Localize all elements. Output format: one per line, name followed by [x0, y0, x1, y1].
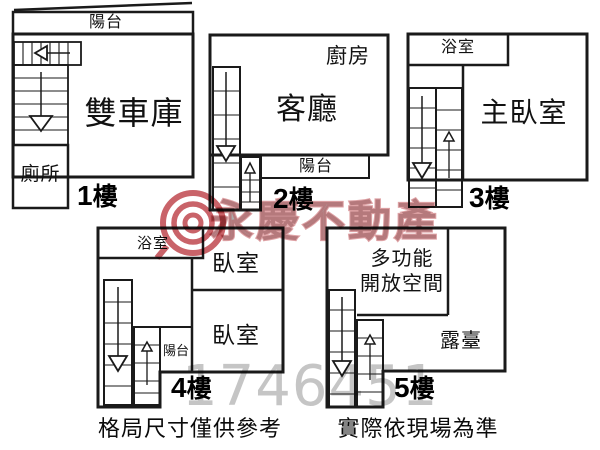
f1-stairs-vertical — [14, 65, 68, 145]
room-label-multifunction-line2: 開放空間 — [350, 272, 454, 295]
stairs-up-arrow-icon — [142, 342, 152, 351]
room-label-balcony-f2: 陽台 — [285, 156, 347, 178]
listing-number-watermark: 1746451 — [182, 356, 412, 418]
floor-3-label: 3樓 — [469, 184, 510, 212]
room-label-toilet: 廁所 — [13, 161, 68, 187]
f4-stairs-up — [134, 327, 160, 405]
f1-stairs-horizontal — [14, 42, 81, 65]
room-label-terrace: 露臺 — [419, 329, 503, 352]
room-label-bath-f3: 浴室 — [430, 37, 486, 59]
floorplan-image: 陽台 雙車庫 廁所 1樓 廚房 客廳 — [0, 0, 600, 450]
room-label-bedroom-bottom: 臥室 — [198, 322, 274, 349]
room-label-balcony-f1: 陽台 — [58, 12, 154, 34]
floor-3-suffix: 樓 — [485, 187, 510, 212]
disclaimer-left: 格局尺寸僅供參考 — [98, 412, 282, 442]
room-label-living: 客廳 — [268, 92, 346, 128]
stairs-up-arrow-icon — [365, 335, 375, 344]
stairs-down-arrow-icon — [413, 163, 431, 178]
f3-stairs — [409, 88, 462, 207]
floor-1-digit: 1 — [77, 182, 93, 210]
room-label-garage: 雙車庫 — [80, 93, 188, 133]
f4-stairs-down — [104, 280, 132, 405]
floor-1-suffix: 樓 — [93, 185, 118, 210]
f1-outer-slant-wall — [14, 3, 192, 10]
room-label-master-bedroom: 主臥室 — [476, 96, 572, 130]
disclaimer-right: 實際依現場為準 — [340, 412, 496, 442]
room-label-kitchen: 廚房 — [320, 44, 376, 68]
floor-3-digit: 3 — [469, 184, 485, 212]
stairs-up-arrow-icon — [444, 132, 454, 141]
floor-1-label: 1樓 — [77, 182, 118, 210]
room-label-multifunction-line1: 多功能 — [350, 247, 454, 270]
brand-watermark-text: 永慶不動產 — [210, 197, 466, 247]
stairs-down-arrow-icon — [30, 116, 52, 131]
stairs-up-arrow-icon — [245, 163, 255, 173]
stairs-down-arrow-icon — [109, 356, 127, 371]
